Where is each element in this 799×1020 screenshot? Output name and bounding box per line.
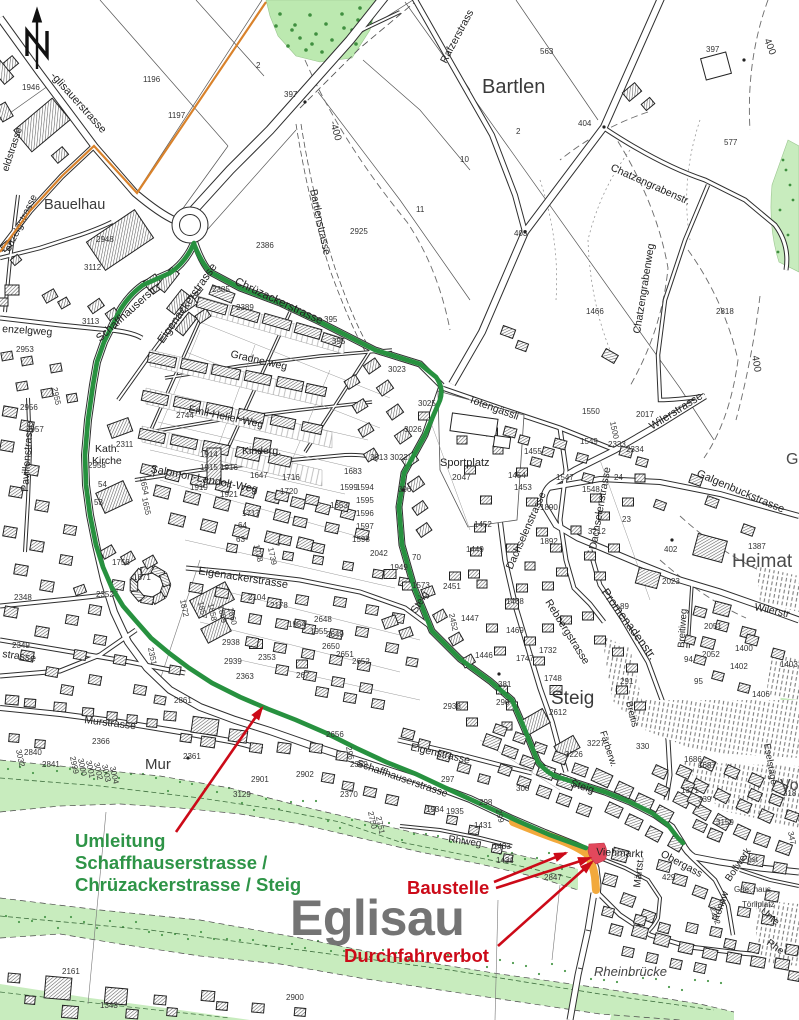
svg-text:1594: 1594 bbox=[356, 483, 374, 492]
svg-text:2104: 2104 bbox=[248, 593, 266, 602]
svg-text:Mur: Mur bbox=[145, 756, 171, 773]
svg-text:2956: 2956 bbox=[20, 403, 38, 412]
svg-text:3227: 3227 bbox=[587, 739, 605, 748]
svg-text:Sportplatz: Sportplatz bbox=[440, 457, 490, 469]
svg-text:64: 64 bbox=[238, 521, 247, 530]
svg-text:1647: 1647 bbox=[250, 471, 268, 480]
svg-text:3113: 3113 bbox=[82, 317, 100, 326]
svg-text:2900: 2900 bbox=[286, 993, 304, 1002]
svg-text:Durchfahrverbot: Durchfahrverbot bbox=[344, 945, 489, 966]
svg-text:1687: 1687 bbox=[698, 761, 716, 770]
svg-text:2361: 2361 bbox=[183, 752, 201, 761]
svg-text:3112: 3112 bbox=[84, 263, 102, 272]
svg-text:Bartlen: Bartlen bbox=[482, 76, 545, 98]
svg-text:1434: 1434 bbox=[496, 856, 514, 865]
svg-text:2612: 2612 bbox=[549, 708, 567, 717]
svg-text:396: 396 bbox=[398, 485, 412, 494]
svg-text:2052: 2052 bbox=[702, 650, 720, 659]
svg-text:2386: 2386 bbox=[256, 241, 274, 250]
svg-text:1469: 1469 bbox=[506, 626, 524, 635]
svg-text:1371: 1371 bbox=[681, 786, 699, 795]
svg-text:1597: 1597 bbox=[356, 522, 374, 531]
svg-text:3026: 3026 bbox=[404, 425, 422, 434]
svg-text:1449: 1449 bbox=[466, 545, 484, 554]
svg-text:2: 2 bbox=[256, 61, 261, 70]
svg-text:2939: 2939 bbox=[224, 657, 242, 666]
svg-text:2017: 2017 bbox=[636, 410, 654, 419]
svg-text:1921: 1921 bbox=[220, 490, 238, 499]
svg-text:G: G bbox=[786, 451, 798, 468]
svg-text:1466: 1466 bbox=[586, 307, 604, 316]
svg-text:2953: 2953 bbox=[16, 345, 34, 354]
svg-text:2369: 2369 bbox=[350, 760, 368, 769]
svg-text:2353: 2353 bbox=[258, 653, 276, 662]
svg-text:1732: 1732 bbox=[539, 646, 557, 655]
svg-text:1596: 1596 bbox=[356, 509, 374, 518]
svg-text:429: 429 bbox=[662, 873, 676, 882]
svg-text:2958: 2958 bbox=[88, 461, 106, 470]
svg-text:297: 297 bbox=[441, 775, 455, 784]
svg-text:339: 339 bbox=[698, 795, 712, 804]
svg-text:1919: 1919 bbox=[190, 483, 208, 492]
svg-text:290: 290 bbox=[496, 698, 510, 707]
svg-text:577: 577 bbox=[724, 138, 738, 147]
svg-text:1387: 1387 bbox=[748, 542, 766, 551]
svg-text:1548: 1548 bbox=[582, 485, 600, 494]
svg-text:Kinderg.: Kinderg. bbox=[242, 445, 281, 457]
svg-text:1447: 1447 bbox=[461, 614, 479, 623]
svg-text:2042: 2042 bbox=[370, 549, 388, 558]
svg-text:63: 63 bbox=[236, 535, 245, 544]
svg-text:2: 2 bbox=[516, 127, 521, 136]
svg-text:2023: 2023 bbox=[662, 577, 680, 586]
svg-text:95: 95 bbox=[694, 677, 703, 686]
svg-text:Post: Post bbox=[742, 855, 759, 864]
svg-text:10: 10 bbox=[460, 155, 469, 164]
svg-text:1573: 1573 bbox=[412, 581, 430, 590]
svg-text:1890: 1890 bbox=[540, 503, 558, 512]
svg-text:2178: 2178 bbox=[270, 601, 288, 610]
svg-text:3013: 3013 bbox=[370, 453, 388, 462]
svg-text:1720: 1720 bbox=[280, 487, 298, 496]
svg-text:2648: 2648 bbox=[314, 615, 332, 624]
svg-text:1748: 1748 bbox=[544, 674, 562, 683]
svg-text:2370: 2370 bbox=[340, 790, 358, 799]
svg-text:1455: 1455 bbox=[524, 447, 542, 456]
svg-text:1717: 1717 bbox=[242, 509, 260, 518]
svg-text:Bauelhau: Bauelhau bbox=[44, 197, 105, 213]
svg-text:1197: 1197 bbox=[168, 111, 186, 120]
svg-text:1549: 1549 bbox=[580, 437, 598, 446]
svg-text:1949: 1949 bbox=[390, 563, 408, 572]
svg-text:Schaffhauserstrasse /: Schaffhauserstrasse / bbox=[75, 852, 267, 873]
svg-text:Steig: Steig bbox=[551, 688, 594, 709]
svg-text:1400: 1400 bbox=[735, 644, 753, 653]
svg-text:1716: 1716 bbox=[282, 473, 300, 482]
svg-text:1683: 1683 bbox=[344, 467, 362, 476]
svg-text:2818: 2818 bbox=[716, 307, 734, 316]
svg-text:2047: 2047 bbox=[452, 472, 471, 482]
svg-text:Eglisau: Eglisau bbox=[290, 890, 464, 946]
svg-text:Rheinbrücke: Rheinbrücke bbox=[594, 964, 667, 979]
svg-text:23: 23 bbox=[622, 515, 631, 524]
svg-text:2385: 2385 bbox=[212, 285, 230, 294]
svg-text:2744: 2744 bbox=[176, 411, 194, 420]
svg-text:1915 1916: 1915 1916 bbox=[200, 463, 238, 472]
svg-text:2161: 2161 bbox=[62, 967, 80, 976]
svg-text:1433: 1433 bbox=[493, 842, 511, 851]
svg-text:1446: 1446 bbox=[475, 651, 493, 660]
svg-text:2451: 2451 bbox=[443, 582, 461, 591]
svg-text:2902: 2902 bbox=[296, 770, 314, 779]
svg-text:Umleitung: Umleitung bbox=[75, 830, 165, 851]
svg-text:1431: 1431 bbox=[474, 821, 492, 830]
svg-text:89: 89 bbox=[620, 602, 629, 611]
svg-text:54: 54 bbox=[98, 480, 107, 489]
svg-text:24: 24 bbox=[614, 473, 623, 482]
svg-text:3023: 3023 bbox=[388, 365, 406, 374]
svg-text:1747: 1747 bbox=[516, 654, 534, 663]
svg-text:3159: 3159 bbox=[716, 818, 734, 827]
svg-text:291: 291 bbox=[620, 677, 634, 686]
svg-text:402: 402 bbox=[664, 545, 678, 554]
svg-text:1758: 1758 bbox=[112, 558, 130, 567]
svg-text:1914: 1914 bbox=[200, 450, 218, 459]
svg-text:2656: 2656 bbox=[326, 730, 344, 739]
svg-text:1595: 1595 bbox=[356, 496, 374, 505]
svg-text:2311: 2311 bbox=[116, 440, 134, 449]
svg-text:3025: 3025 bbox=[418, 399, 436, 408]
svg-text:1547: 1547 bbox=[556, 473, 574, 482]
svg-text:2389: 2389 bbox=[236, 303, 254, 312]
svg-text:2348: 2348 bbox=[14, 593, 32, 602]
svg-text:1946: 1946 bbox=[22, 83, 40, 92]
svg-text:1871: 1871 bbox=[133, 573, 151, 582]
svg-text:2957: 2957 bbox=[26, 425, 44, 434]
svg-text:2349: 2349 bbox=[12, 641, 30, 650]
svg-text:1454: 1454 bbox=[508, 471, 526, 480]
svg-text:563: 563 bbox=[540, 47, 554, 56]
svg-text:1468: 1468 bbox=[506, 597, 524, 606]
svg-text:2938: 2938 bbox=[222, 638, 240, 647]
svg-text:1892: 1892 bbox=[540, 537, 558, 546]
svg-text:Gde. haus: Gde. haus bbox=[734, 885, 771, 894]
svg-text:1403: 1403 bbox=[780, 660, 798, 669]
svg-text:403: 403 bbox=[514, 229, 528, 238]
svg-text:300: 300 bbox=[516, 784, 530, 793]
svg-text:1453: 1453 bbox=[514, 483, 532, 492]
svg-text:2840: 2840 bbox=[24, 748, 42, 757]
svg-text:3129: 3129 bbox=[233, 790, 251, 799]
svg-text:397: 397 bbox=[706, 45, 720, 54]
svg-text:2901: 2901 bbox=[251, 775, 269, 784]
svg-text:1402: 1402 bbox=[730, 662, 748, 671]
svg-text:Chrüzackerstrasse / Steig: Chrüzackerstrasse / Steig bbox=[75, 874, 301, 895]
svg-text:2649: 2649 bbox=[326, 630, 344, 639]
svg-text:2363: 2363 bbox=[236, 672, 254, 681]
svg-text:404: 404 bbox=[578, 119, 592, 128]
svg-text:1599: 1599 bbox=[340, 483, 358, 492]
svg-text:1598: 1598 bbox=[352, 535, 370, 544]
svg-text:Heimat: Heimat bbox=[732, 551, 793, 572]
svg-text:2652: 2652 bbox=[352, 657, 370, 666]
svg-text:Törliplatz: Törliplatz bbox=[742, 900, 774, 909]
svg-text:2334: 2334 bbox=[626, 445, 644, 454]
svg-text:2841: 2841 bbox=[42, 760, 60, 769]
svg-text:2925: 2925 bbox=[350, 227, 368, 236]
svg-text:1550: 1550 bbox=[582, 407, 600, 416]
svg-text:330: 330 bbox=[636, 742, 650, 751]
svg-text:Baustelle: Baustelle bbox=[407, 877, 489, 898]
svg-text:53: 53 bbox=[94, 498, 103, 507]
svg-text:318: 318 bbox=[783, 789, 797, 798]
svg-text:70: 70 bbox=[412, 553, 421, 562]
svg-text:2366: 2366 bbox=[92, 737, 110, 746]
svg-text:1954: 1954 bbox=[288, 620, 306, 629]
svg-text:3226: 3226 bbox=[565, 750, 583, 759]
svg-text:1196: 1196 bbox=[143, 75, 161, 84]
svg-text:298: 298 bbox=[479, 798, 493, 807]
svg-text:395: 395 bbox=[324, 315, 338, 324]
svg-text:3022: 3022 bbox=[390, 453, 408, 462]
svg-text:2948: 2948 bbox=[96, 235, 114, 244]
svg-text:2051: 2051 bbox=[704, 622, 722, 631]
svg-text:381: 381 bbox=[498, 680, 512, 689]
svg-text:3212: 3212 bbox=[588, 527, 606, 536]
svg-text:2333: 2333 bbox=[608, 440, 626, 449]
svg-text:2847: 2847 bbox=[544, 873, 562, 882]
svg-text:11: 11 bbox=[416, 205, 425, 214]
svg-text:267: 267 bbox=[296, 671, 310, 680]
svg-text:1452: 1452 bbox=[474, 520, 492, 529]
svg-text:94: 94 bbox=[684, 655, 693, 664]
svg-text:1343: 1343 bbox=[100, 1001, 118, 1010]
svg-text:1406: 1406 bbox=[752, 690, 770, 699]
svg-text:2352: 2352 bbox=[96, 590, 114, 599]
svg-text:1935: 1935 bbox=[446, 807, 464, 816]
svg-text:1934: 1934 bbox=[426, 805, 444, 814]
svg-text:2861: 2861 bbox=[174, 696, 192, 705]
svg-text:2938: 2938 bbox=[443, 702, 461, 711]
svg-text:1653: 1653 bbox=[330, 501, 348, 510]
svg-text:395: 395 bbox=[332, 337, 346, 346]
svg-text:397: 397 bbox=[284, 90, 298, 99]
